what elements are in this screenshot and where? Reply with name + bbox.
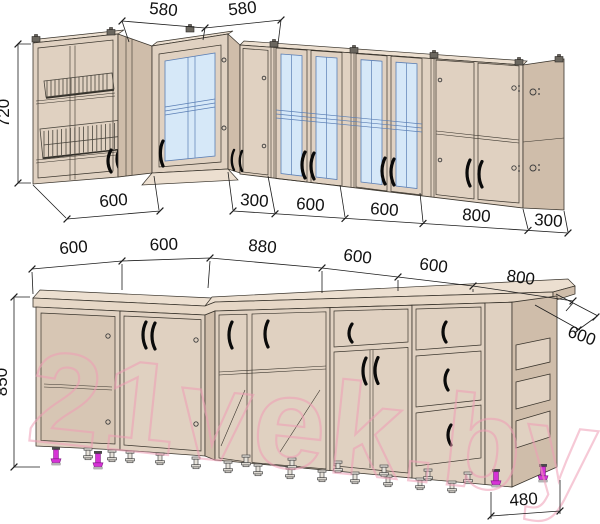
dim-upper-bottom-1: 300: [240, 190, 270, 211]
dim-upper-bottom-2: 600: [296, 194, 326, 215]
kitchen-technical-drawing: 21vek.by 720 580 580 600 300 600 600 800…: [0, 0, 600, 524]
wall-hanger-icon: [555, 55, 563, 63]
dim-lower-depth: 600: [565, 322, 598, 350]
kitchen-drawing-svg: 21vek.by 720 580 580 600 300 600 600 800…: [0, 0, 600, 524]
dim-upper-top-0: 580: [149, 0, 179, 20]
wall-cabinets: [32, 25, 564, 211]
dim-upper-bottom-0: 600: [99, 190, 129, 211]
dim-upper-bottom-4: 800: [462, 205, 492, 226]
dim-lower-top-5: 800: [505, 266, 536, 289]
wall-hanger-icon: [350, 46, 358, 54]
dim-lower-top-0: 600: [59, 237, 89, 258]
end-side-panel: [523, 59, 564, 210]
wall-hanger-icon: [430, 51, 438, 59]
dim-upper-bottom-3: 600: [370, 199, 400, 220]
corner-filler-panel: [118, 34, 152, 177]
dim-lower-top-1: 600: [149, 235, 178, 255]
wall-hanger-icon: [515, 58, 523, 66]
wall-cabinets-run: [232, 40, 564, 211]
wall-hanger-icon: [107, 28, 115, 36]
dim-lower-bottom: 480: [509, 489, 539, 510]
dim-upper-top-1: 580: [227, 0, 257, 19]
wall-hanger-icon: [270, 40, 278, 48]
dim-upper-bottom-5: 300: [534, 210, 564, 231]
dim-lower-top-2: 880: [248, 236, 278, 257]
wall-hanger-icon: [32, 35, 40, 43]
wall-hanger-icon: [186, 25, 194, 33]
dim-lower-top-4: 600: [418, 254, 448, 276]
dim-lower-top-3: 600: [342, 245, 372, 267]
wall-corner-glass-cabinet: [142, 25, 240, 186]
dim-lower-height: 850: [0, 368, 11, 396]
dim-upper-height: 720: [0, 99, 13, 127]
